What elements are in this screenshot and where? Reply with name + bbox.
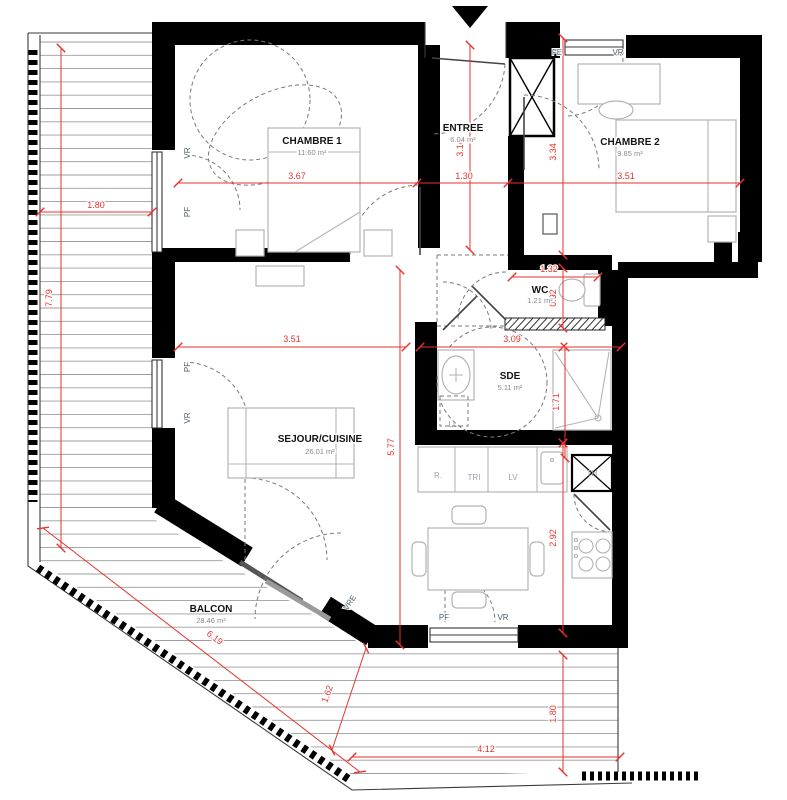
room-area-balcon: 28.46 m² <box>196 616 226 625</box>
opening-label-vr: VR <box>612 48 623 57</box>
appliance-label-water-heater: TH <box>587 469 598 478</box>
appliance-label-washer: LL <box>449 420 458 429</box>
dim-balcony-bottom-height: 1.80 <box>548 705 558 723</box>
dim-chambre2-width: 3.51 <box>617 171 635 181</box>
dim-balcony-diagonal: 6.19 <box>205 628 225 647</box>
room-label-chambre2: CHAMBRE 2 <box>600 137 660 148</box>
opening-label-pf: PF <box>183 207 192 217</box>
opening-label-vre: VRE <box>342 593 359 612</box>
floor-plan-canvas: 1.80 7.79 3.67 3.16 1.30 3.51 3.34 1.32 … <box>0 0 787 800</box>
dim-kitchen-height: 2.92 <box>548 529 558 547</box>
dim-chambre2-height: 3.34 <box>548 143 558 161</box>
room-label-sejour: SEJOUR/CUISINE <box>278 434 363 445</box>
room-label-chambre1: CHAMBRE 1 <box>282 136 342 147</box>
dim-sde-height: 1.71 <box>551 393 561 411</box>
appliance-label-sorting: TRI <box>468 473 481 482</box>
dim-sejour-height: 5.77 <box>386 438 396 456</box>
dim-balcony-left-height: 7.79 <box>44 289 54 307</box>
room-label-entree: ENTREE <box>443 123 484 134</box>
room-area-sde: 5.11 m² <box>498 383 523 392</box>
floor-plan: 1.80 7.79 3.67 3.16 1.30 3.51 3.34 1.32 … <box>0 0 787 800</box>
opening-label-pf: PF <box>439 613 449 622</box>
room-area-chambre2: 9.85 m² <box>617 149 643 158</box>
dim-balcony-left-width: 1.80 <box>87 200 105 210</box>
opening-label-pf: PF <box>183 362 192 372</box>
room-label-sde: SDE <box>500 371 521 382</box>
room-separations <box>437 255 508 326</box>
room-area-wc: 1.21 m² <box>527 296 553 305</box>
room-area-chambre1: 11.60 m² <box>297 148 327 157</box>
dim-chambre1-width: 3.67 <box>288 171 306 181</box>
opening-label-vr: VR <box>497 613 508 622</box>
dim-balcony-bottom-width: 4.12 <box>477 744 495 754</box>
room-area-entree: 6.04 m² <box>450 135 476 144</box>
entrance-arrow-icon <box>452 6 488 28</box>
dim-sejour-width: 3.51 <box>283 334 301 344</box>
appliance-label-fridge: R. <box>434 471 442 480</box>
room-label-balcon: BALCON <box>190 604 233 615</box>
opening-label-fe: FE <box>552 48 562 57</box>
dim-wc-width: 1.32 <box>540 264 558 274</box>
appliance-label-dishwasher: LV <box>508 473 518 482</box>
dim-sde-width: 3.09 <box>503 334 521 344</box>
opening-label-vr: VR <box>183 412 192 423</box>
room-area-sejour: 26.01 m² <box>305 447 335 456</box>
room-label-wc: WC <box>532 285 549 296</box>
dim-entree-width: 1.30 <box>455 171 473 181</box>
opening-label-vr: VR <box>183 147 192 158</box>
